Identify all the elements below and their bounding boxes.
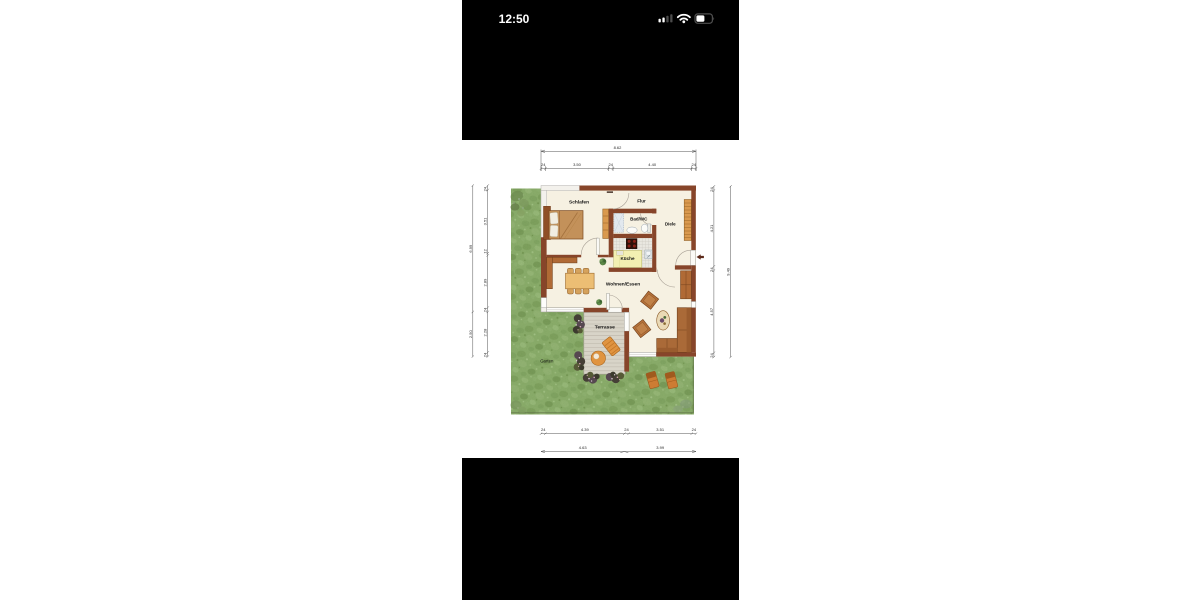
svg-text:Flur: Flur: [637, 198, 646, 203]
svg-text:24: 24: [608, 162, 613, 167]
svg-text:4.63: 4.63: [579, 445, 588, 450]
svg-text:8.62: 8.62: [614, 145, 623, 150]
svg-text:2.28: 2.28: [483, 328, 488, 337]
svg-text:24: 24: [692, 427, 697, 432]
svg-text:4.39: 4.39: [581, 427, 590, 432]
svg-text:6.99: 6.99: [468, 244, 473, 253]
svg-text:24: 24: [483, 307, 488, 312]
svg-text:24: 24: [483, 352, 488, 357]
svg-text:3.51: 3.51: [483, 217, 488, 226]
svg-text:3.50: 3.50: [573, 162, 582, 167]
svg-text:24: 24: [624, 427, 629, 432]
svg-text:12: 12: [483, 248, 488, 253]
svg-text:4.57: 4.57: [709, 307, 714, 316]
svg-text:4.21: 4.21: [709, 224, 714, 233]
svg-text:24: 24: [541, 162, 546, 167]
svg-text:Terrasse: Terrasse: [595, 324, 615, 330]
svg-text:Garten: Garten: [540, 359, 554, 364]
svg-text:Schlafen: Schlafen: [569, 200, 589, 206]
svg-text:Küche: Küche: [620, 256, 634, 261]
svg-text:24: 24: [483, 186, 488, 191]
svg-text:2.50: 2.50: [468, 330, 473, 339]
svg-text:3.99: 3.99: [656, 445, 665, 450]
svg-text:24: 24: [709, 267, 714, 272]
svg-text:9.49: 9.49: [726, 267, 731, 276]
svg-text:Wohnen/Essen: Wohnen/Essen: [606, 281, 640, 287]
svg-text:24: 24: [709, 353, 714, 358]
svg-text:24: 24: [541, 427, 546, 432]
svg-text:Bad/WC: Bad/WC: [630, 216, 648, 221]
svg-text:24: 24: [691, 162, 696, 167]
svg-text:2.89: 2.89: [483, 278, 488, 287]
svg-text:3.51: 3.51: [656, 427, 665, 432]
svg-text:4.40: 4.40: [648, 162, 657, 167]
svg-text:Diele: Diele: [665, 222, 676, 227]
svg-text:24: 24: [709, 187, 714, 192]
